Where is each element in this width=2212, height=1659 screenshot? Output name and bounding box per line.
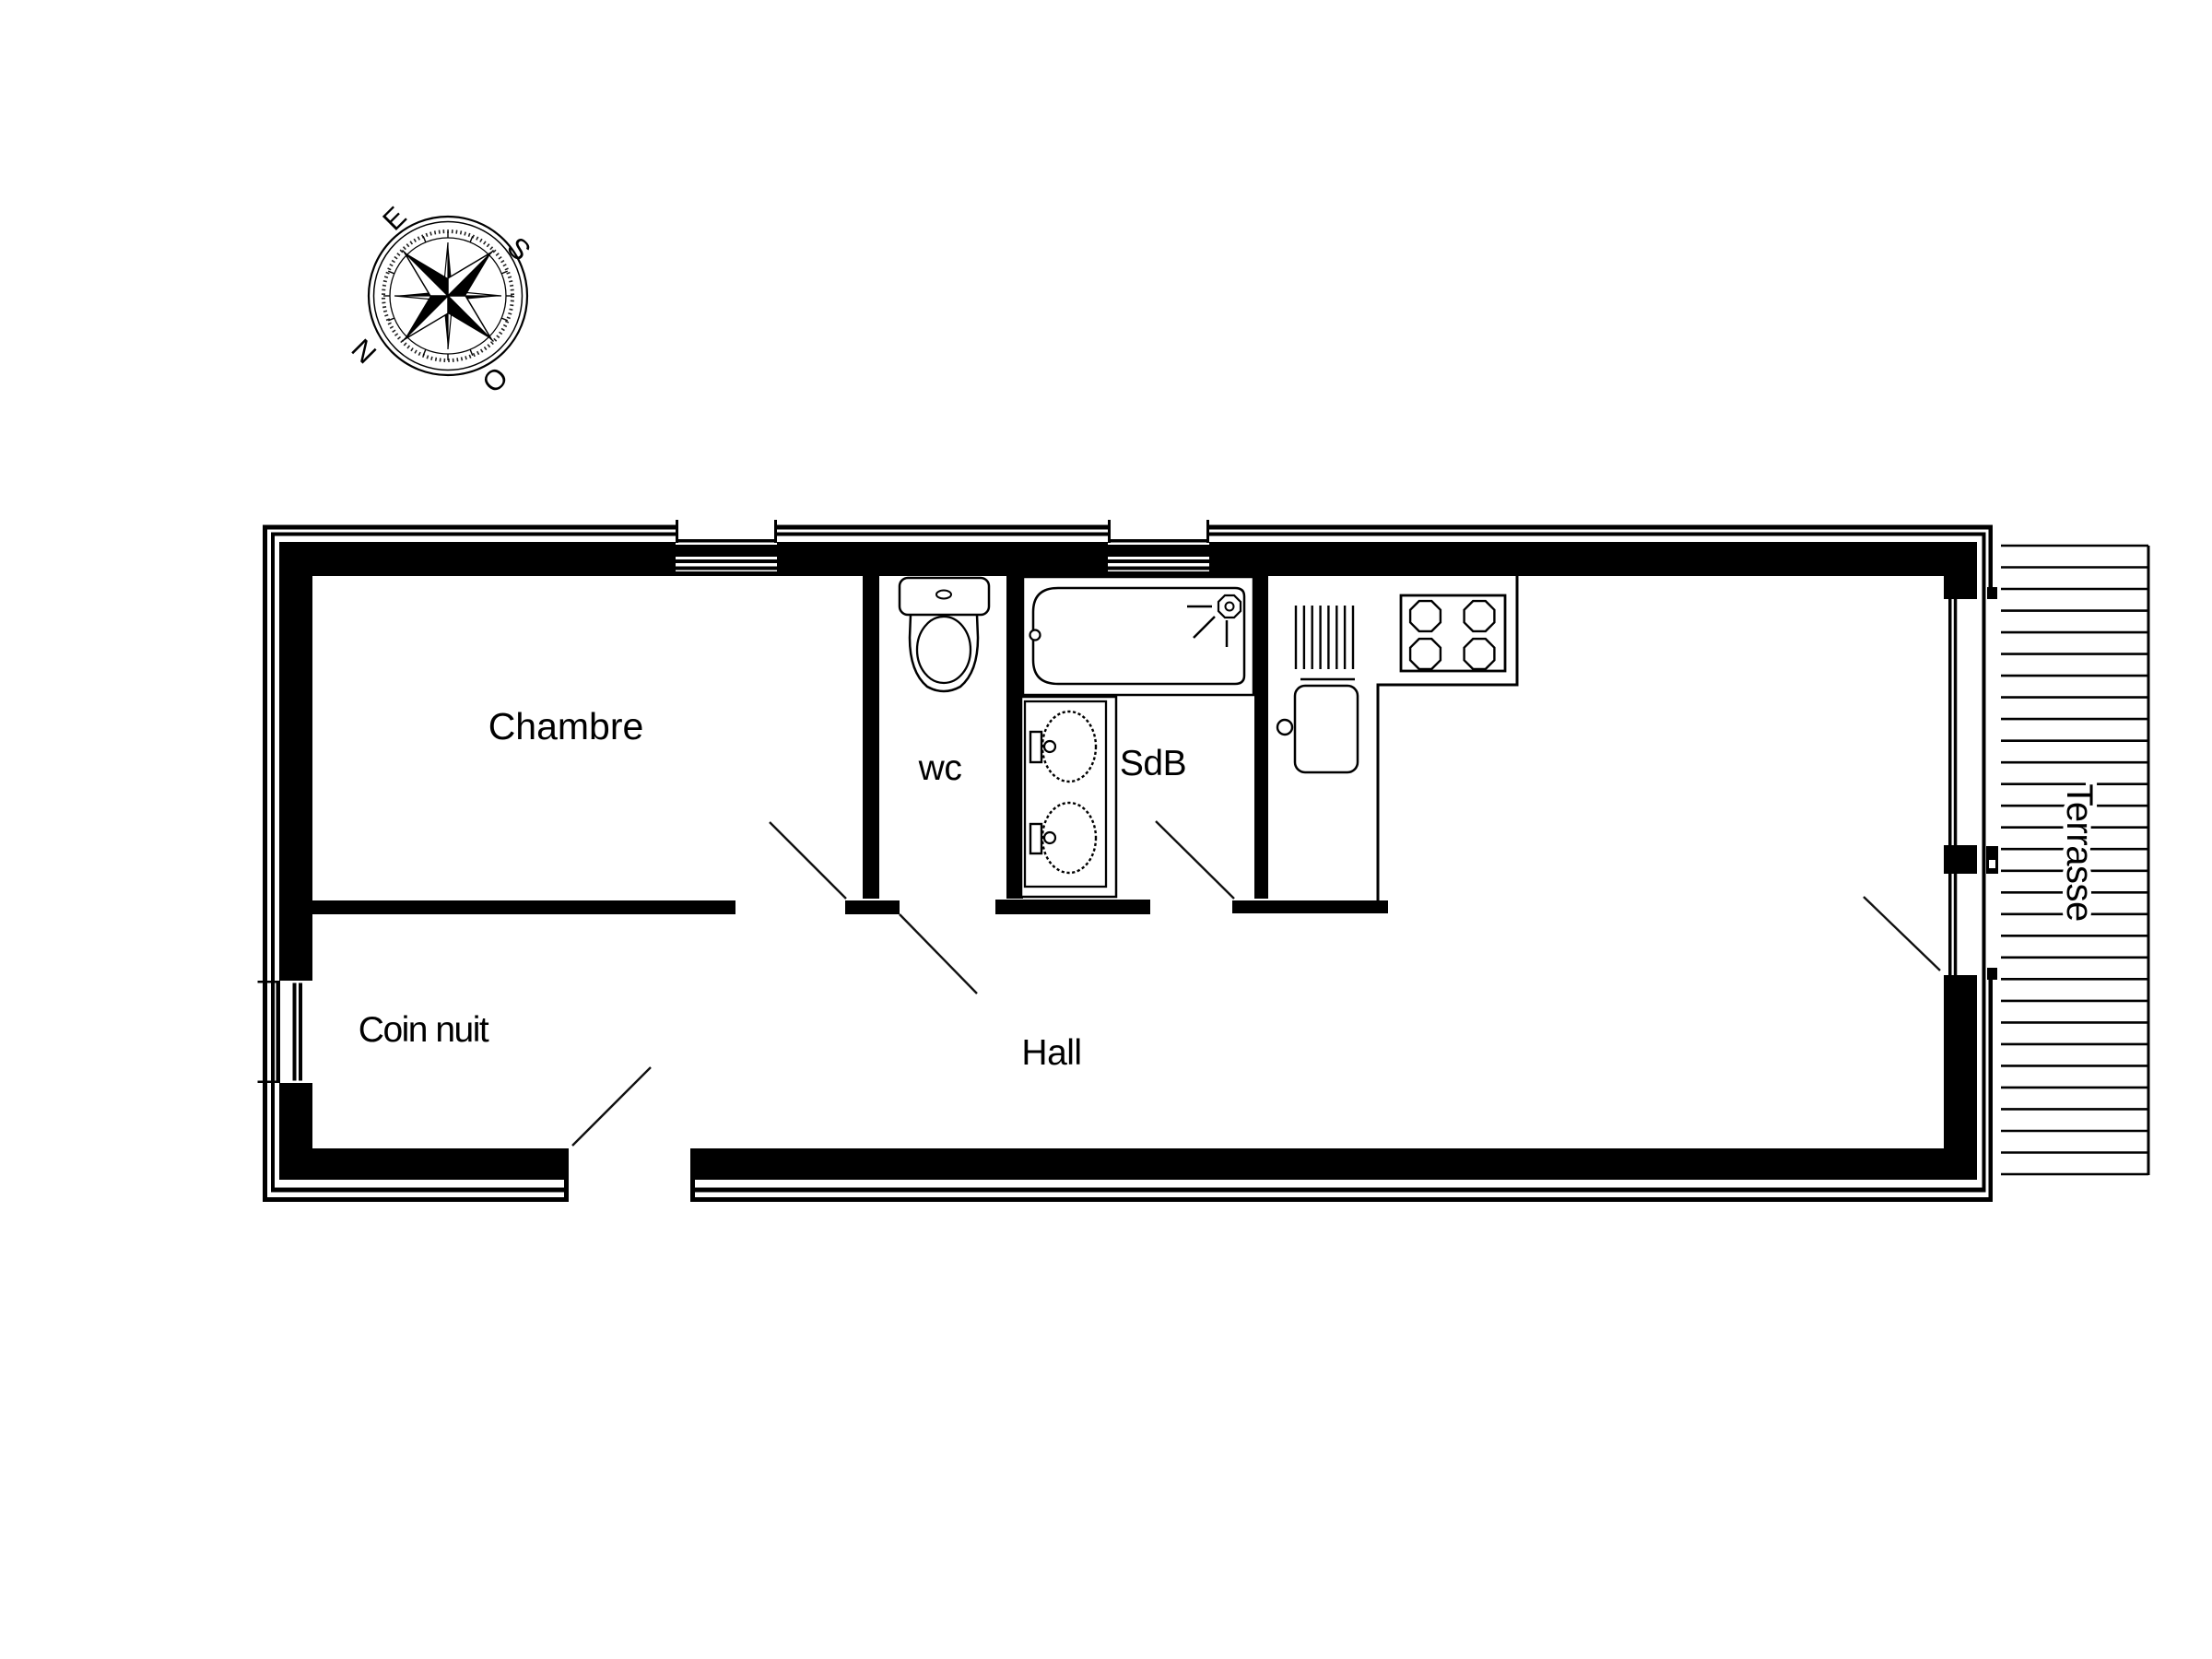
svg-text:wc: wc <box>918 748 962 788</box>
svg-text:Chambre: Chambre <box>488 705 644 747</box>
svg-text:Hall: Hall <box>1021 1033 1081 1073</box>
svg-text:Terrasse: Terrasse <box>2059 783 2100 921</box>
svg-text:SdB: SdB <box>1120 744 1186 783</box>
svg-text:Coin nuit: Coin nuit <box>359 1010 489 1050</box>
